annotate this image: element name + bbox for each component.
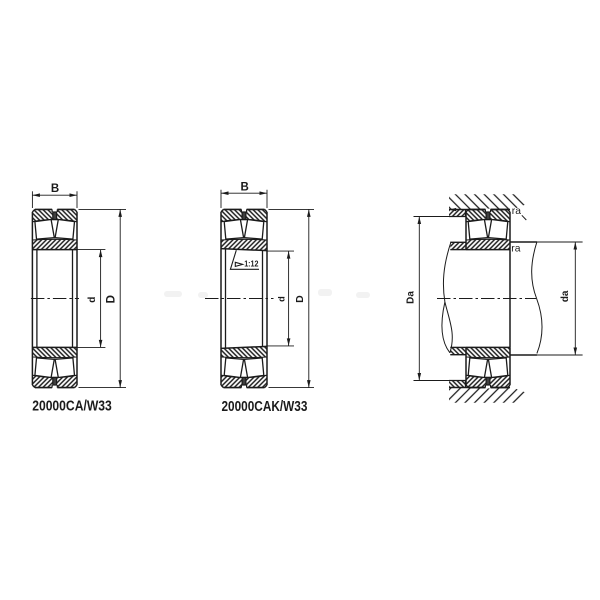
svg-text:D: D (105, 295, 117, 303)
svg-text:B: B (51, 183, 59, 195)
svg-text:d: d (87, 297, 98, 303)
svg-text:ra: ra (511, 243, 520, 254)
svg-text:20000CA/W33: 20000CA/W33 (32, 399, 112, 415)
svg-text:1:12: 1:12 (244, 260, 259, 269)
svg-text:B: B (240, 182, 248, 194)
svg-text:20000CAK/W33: 20000CAK/W33 (222, 399, 308, 415)
svg-text:d: d (277, 296, 287, 302)
svg-text:Da: Da (405, 291, 416, 304)
svg-text:ra: ra (512, 206, 521, 217)
svg-text:da: da (560, 290, 571, 302)
svg-text:D: D (295, 295, 306, 302)
